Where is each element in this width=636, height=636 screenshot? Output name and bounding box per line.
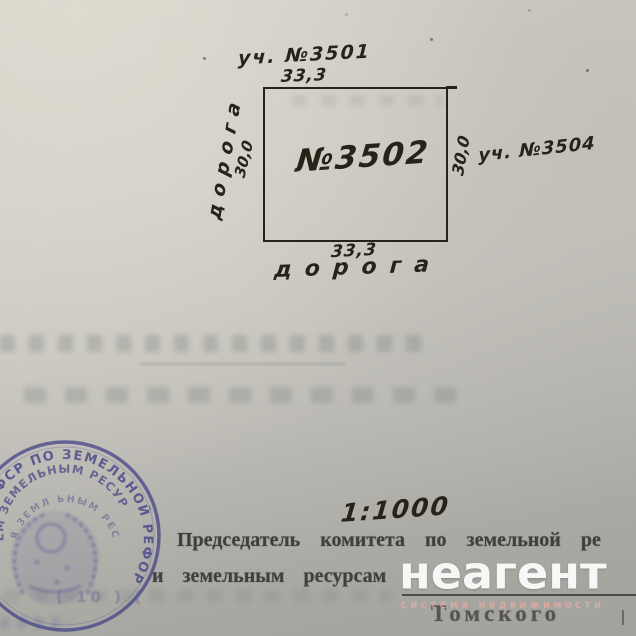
stamp-bottom-marks: ( 10 ) (: [56, 588, 145, 606]
dimension-top: 33,3: [280, 65, 328, 87]
stray-mark: [622, 610, 624, 625]
paper-speck: [203, 57, 206, 60]
dimension-right: 30,0: [446, 121, 475, 189]
paper-speck: [430, 38, 433, 41]
paper-speck: [345, 13, 348, 16]
bleed-through-text: [292, 95, 442, 106]
typed-line-land-resources: и земельным ресурсам: [152, 565, 386, 588]
watermark-brand: неагент: [399, 551, 607, 594]
bleed-through-text-row: [0, 335, 422, 352]
bleed-through-text-row: [24, 387, 462, 403]
paper-speck: [528, 9, 531, 12]
road-label-bottom: дорога: [273, 252, 443, 283]
bleed-through-line: [140, 363, 345, 365]
neighbor-plot-label-right: уч. №3504: [478, 133, 595, 166]
scanned-land-plot-document: уч. №3501 33,3 №3502 дорога 30,0 30,0 уч…: [0, 0, 636, 636]
paper-speck: [586, 69, 589, 72]
corner-tick: [446, 86, 457, 89]
watermark-tagline: система недвижимости: [401, 599, 607, 611]
scale-note: 1:1000: [340, 491, 452, 528]
round-ink-stamp: ЕТ РСФСР ПО ЗЕМЕЛЬНОЙ РЕФОР ЕМ ЗЕМЕЛЬНЫМ…: [0, 436, 170, 636]
watermark: неагент система недвижимости: [399, 551, 607, 611]
